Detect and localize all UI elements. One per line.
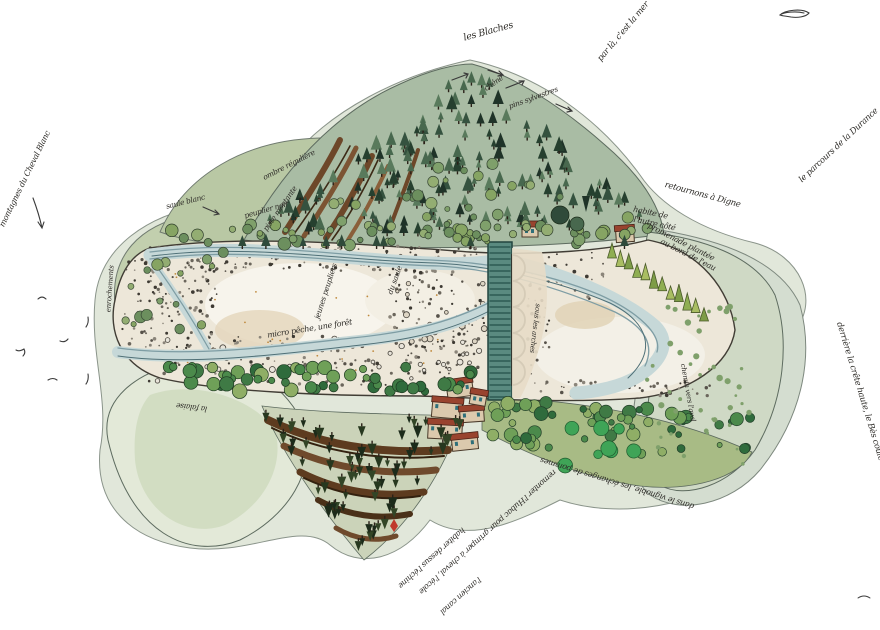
annotation-digne: retournons à Digne [663, 179, 742, 210]
watercolor-map: les Blaches par là, c'est la mer le parc… [0, 0, 880, 630]
squiggle-icon [780, 10, 809, 17]
map-canvas: les Blaches par là, c'est la mer le parc… [0, 0, 880, 630]
annotation-canal: l'ancien canal [438, 575, 483, 617]
annotation-cheval-blanc: montagnes du Cheval Blanc [0, 129, 52, 229]
annotation-bes: derrière la crête haute, le Bès coule [834, 321, 880, 462]
annotation-durance: le parcours de la Durance [797, 106, 880, 185]
annotation-les-blaches: les Blaches [462, 20, 514, 44]
annotation-la-mer: par là, c'est la mer [595, 0, 652, 64]
